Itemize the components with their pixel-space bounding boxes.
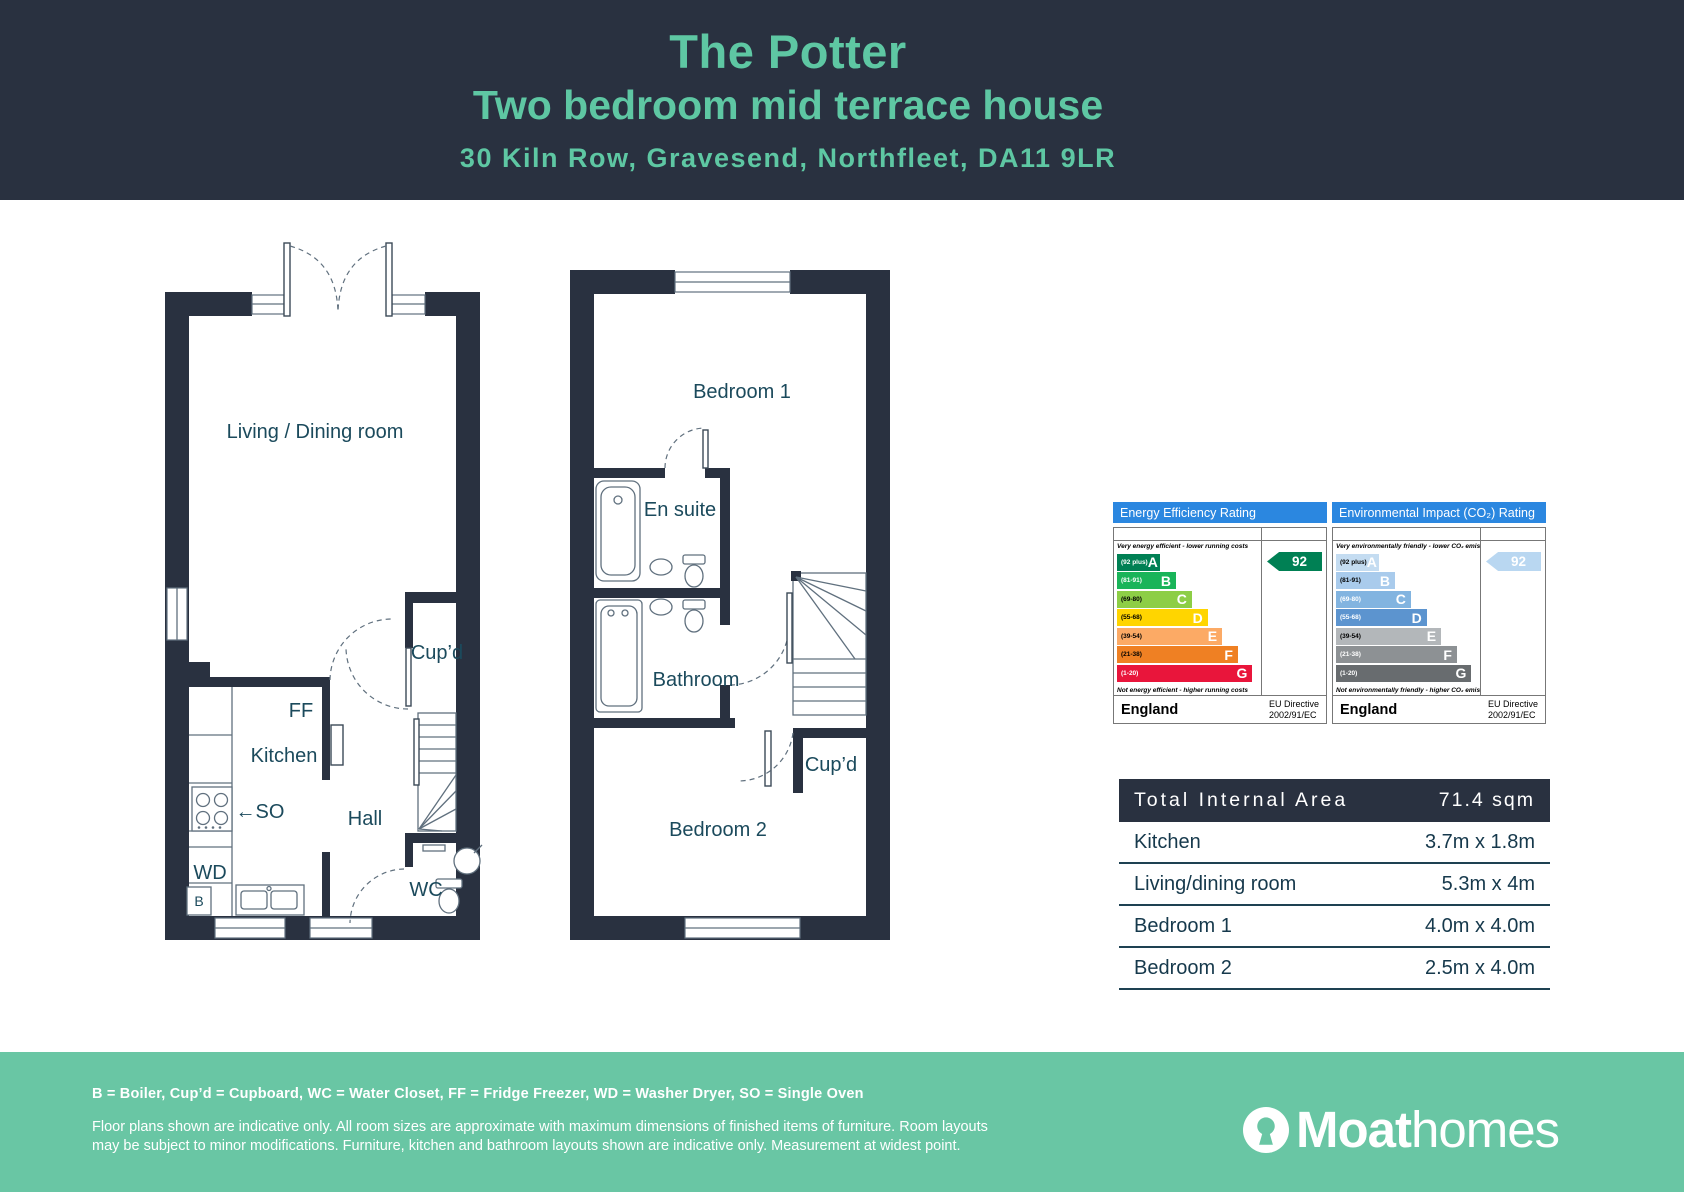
band-letter: F xyxy=(1443,648,1452,662)
band-range: (21-38) xyxy=(1340,651,1361,658)
energy-bottom-note: Not energy efficient - higher running co… xyxy=(1114,685,1261,695)
first-floor-plan: Bedroom 1 En suite Bathroom Cup’d Bedroo… xyxy=(565,215,895,945)
keyhole-icon xyxy=(1243,1107,1289,1153)
energy-rating-arrow: 92 xyxy=(1267,552,1322,571)
band-range: (81-91) xyxy=(1340,577,1361,584)
room-label-bedroom1: Bedroom 1 xyxy=(693,381,791,403)
environmental-impact-chart: Environmental Impact (CO₂) Rating Very e… xyxy=(1332,502,1546,724)
room-label-hall: Hall xyxy=(348,808,382,830)
band-letter: E xyxy=(1208,629,1217,643)
ground-walls xyxy=(165,292,480,940)
band-range: (69-80) xyxy=(1340,596,1361,603)
band-letter: G xyxy=(1236,666,1247,680)
row-label: Kitchen xyxy=(1134,831,1201,854)
room-label-wc: WC xyxy=(409,879,442,901)
band-letter: C xyxy=(1177,592,1187,606)
band-letter: F xyxy=(1224,648,1233,662)
energy-band-d: (55-68)D xyxy=(1117,609,1261,626)
row-value: 3.7m x 1.8m xyxy=(1425,831,1535,854)
ground-door-arcs xyxy=(330,619,411,923)
band-letter: E xyxy=(1427,629,1436,643)
band-range: (39-54) xyxy=(1121,633,1142,640)
env-band-c: (69-80)C xyxy=(1336,591,1480,608)
row-label: Bedroom 1 xyxy=(1134,915,1232,938)
page-title: The Potter xyxy=(0,24,1576,79)
total-area-value: 71.4 sqm xyxy=(1439,789,1535,812)
energy-directive: EU Directive 2002/91/EC xyxy=(1269,699,1319,720)
page-subtitle: Two bedroom mid terrace house xyxy=(0,82,1576,129)
energy-band-a: (92 plus)A xyxy=(1117,554,1261,571)
band-letter: G xyxy=(1455,666,1466,680)
table-row: Bedroom 2 2.5m x 4.0m xyxy=(1119,948,1550,990)
band-letter: D xyxy=(1193,611,1203,625)
band-range: (1-20) xyxy=(1121,670,1138,677)
environmental-top-note: Very environmentally friendly - lower CO… xyxy=(1333,541,1480,551)
band-range: (21-38) xyxy=(1121,651,1142,658)
logo-text-light: homes xyxy=(1411,1100,1559,1159)
band-letter: D xyxy=(1412,611,1422,625)
table-row: Kitchen 3.7m x 1.8m xyxy=(1119,822,1550,864)
room-dimensions-table: Total Internal Area 71.4 sqm Kitchen 3.7… xyxy=(1119,779,1550,990)
energy-band-c: (69-80)C xyxy=(1117,591,1261,608)
moat-homes-logo: Moathomes xyxy=(1243,1100,1559,1159)
property-address: 30 Kiln Row, Gravesend, Northfleet, DA11… xyxy=(0,143,1576,174)
room-label-fridge-freezer: FF xyxy=(289,700,313,722)
env-band-a: (92 plus)A xyxy=(1336,554,1480,571)
energy-band-b: (81-91)B xyxy=(1117,572,1261,589)
bathroom-fixtures xyxy=(596,599,705,712)
total-area-label: Total Internal Area xyxy=(1134,789,1348,812)
band-letter: A xyxy=(1367,555,1377,569)
environmental-country: England xyxy=(1340,702,1397,718)
band-range: (1-20) xyxy=(1340,670,1357,677)
room-label-single-oven: ←SO xyxy=(236,801,285,823)
row-value: 2.5m x 4.0m xyxy=(1425,957,1535,980)
energy-country: England xyxy=(1121,702,1178,718)
table-row: Living/dining room 5.3m x 4m xyxy=(1119,864,1550,906)
environmental-bottom-note: Not environmentally friendly - higher CO… xyxy=(1333,685,1480,695)
room-label-ensuite: En suite xyxy=(644,499,716,521)
band-range: (55-68) xyxy=(1121,614,1142,621)
energy-band-e: (39-54)E xyxy=(1117,628,1261,645)
table-row: Bedroom 1 4.0m x 4.0m xyxy=(1119,906,1550,948)
band-letter: C xyxy=(1396,592,1406,606)
band-range: (69-80) xyxy=(1121,596,1142,603)
ground-stairs xyxy=(414,713,456,831)
band-range: (92 plus) xyxy=(1340,559,1367,566)
energy-band-g: (1-20)G xyxy=(1117,665,1261,682)
environmental-rating-arrow: 92 xyxy=(1486,552,1541,571)
room-label-bathroom: Bathroom xyxy=(653,669,740,691)
room-label-bedroom2: Bedroom 2 xyxy=(669,819,767,841)
ensuite-fixtures xyxy=(596,481,705,587)
table-header-row: Total Internal Area 71.4 sqm xyxy=(1119,779,1550,822)
sink-icon xyxy=(236,885,304,915)
brochure-page: The Potter Two bedroom mid terrace house… xyxy=(0,0,1684,1192)
french-doors xyxy=(284,243,392,316)
row-label: Living/dining room xyxy=(1134,873,1296,896)
abbreviation-legend: B = Boiler, Cup’d = Cupboard, WC = Water… xyxy=(92,1086,864,1102)
env-band-d: (55-68)D xyxy=(1336,609,1480,626)
band-letter: B xyxy=(1380,574,1390,588)
logo-text-bold: Moat xyxy=(1296,1100,1411,1159)
disclaimer-text: Floor plans shown are indicative only. A… xyxy=(92,1118,997,1156)
room-label-boiler: B xyxy=(194,893,203,909)
band-letter: A xyxy=(1148,555,1158,569)
ground-windows xyxy=(167,295,425,938)
room-label-washer-dryer: WD xyxy=(193,862,226,884)
row-label: Bedroom 2 xyxy=(1134,957,1232,980)
hob-icon xyxy=(192,787,232,831)
header-text-block: The Potter Two bedroom mid terrace house… xyxy=(0,0,1576,200)
energy-chart-title: Energy Efficiency Rating xyxy=(1113,502,1327,523)
room-label-cupboard-ground: Cup’d xyxy=(411,642,463,664)
environmental-directive: EU Directive 2002/91/EC xyxy=(1488,699,1538,720)
first-stairs xyxy=(787,571,866,715)
env-band-g: (1-20)G xyxy=(1336,665,1480,682)
band-range: (81-91) xyxy=(1121,577,1142,584)
energy-bands: (92 plus)A (81-91)B (69-80)C (55-68)D (3… xyxy=(1114,551,1261,685)
room-label-kitchen: Kitchen xyxy=(251,745,318,767)
env-band-f: (21-38)F xyxy=(1336,646,1480,663)
environmental-bands: (92 plus)A (81-91)B (69-80)C (55-68)D (3… xyxy=(1333,551,1480,685)
row-value: 5.3m x 4m xyxy=(1442,873,1535,896)
env-band-b: (81-91)B xyxy=(1336,572,1480,589)
band-range: (39-54) xyxy=(1340,633,1361,640)
env-band-e: (39-54)E xyxy=(1336,628,1480,645)
row-value: 4.0m x 4.0m xyxy=(1425,915,1535,938)
energy-top-note: Very energy efficient - lower running co… xyxy=(1114,541,1261,551)
ground-floor-plan: Living / Dining room Cup’d FF Kitchen ←S… xyxy=(140,215,500,945)
room-label-cupboard-first: Cup’d xyxy=(805,754,857,776)
environmental-chart-title: Environmental Impact (CO₂) Rating xyxy=(1332,502,1546,523)
energy-efficiency-chart: Energy Efficiency Rating Very energy eff… xyxy=(1113,502,1327,724)
band-range: (92 plus) xyxy=(1121,559,1148,566)
header-band: The Potter Two bedroom mid terrace house… xyxy=(0,0,1684,200)
energy-band-f: (21-38)F xyxy=(1117,646,1261,663)
room-label-living-dining: Living / Dining room xyxy=(227,421,404,443)
band-range: (55-68) xyxy=(1340,614,1361,621)
band-letter: B xyxy=(1161,574,1171,588)
